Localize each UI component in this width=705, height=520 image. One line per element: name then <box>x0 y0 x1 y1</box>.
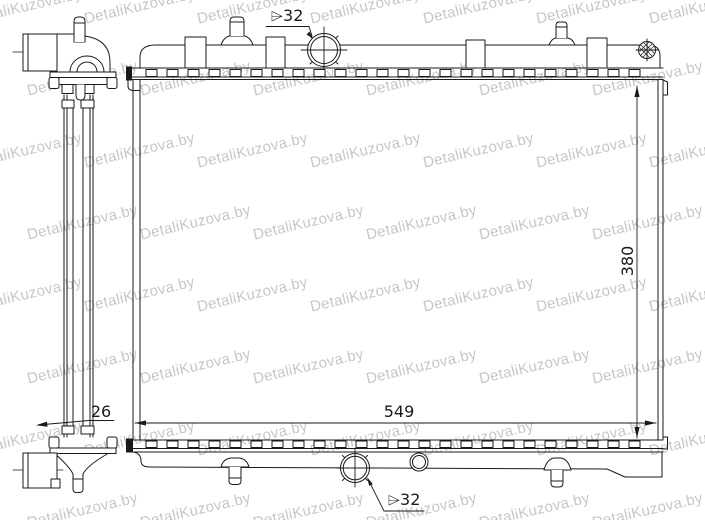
core-side-profile <box>62 95 94 437</box>
side-bottom-flange <box>49 437 117 454</box>
top-port-diameter-label: ⌲32 <box>264 8 310 24</box>
bottom-tank-outline <box>133 452 662 477</box>
radiator-technical-drawing <box>0 0 705 520</box>
sensor-port-circle <box>410 453 428 471</box>
screenshot-canvas: DetaliKuzova.byDetaliKuzova.byDetaliKuzo… <box>0 0 705 520</box>
side-channels <box>128 80 663 441</box>
inlet-connector <box>23 17 110 72</box>
top-tank-outline <box>140 45 660 68</box>
drain-plug <box>221 458 249 485</box>
bleed-stub <box>74 17 85 42</box>
outlet-connector <box>23 453 108 493</box>
leader-depth-26 <box>36 421 114 427</box>
bleed-pipe-left <box>221 17 253 45</box>
side-view-drawing <box>13 17 117 493</box>
header-plate-bottom <box>126 437 668 453</box>
side-top-flange <box>49 72 117 100</box>
dimension-549 <box>135 420 656 425</box>
header-plate-top <box>126 67 668 96</box>
core-width-label: 549 <box>372 404 426 420</box>
core-height-label: 380 <box>620 241 636 281</box>
front-view-drawing <box>126 17 668 511</box>
core-depth-label: 26 <box>86 404 116 420</box>
bottom-port-diameter-label: ⌲32 <box>383 492 425 508</box>
bleed-pipe-right <box>549 22 575 45</box>
filler-cap <box>636 39 658 61</box>
mounting-peg <box>544 458 571 487</box>
